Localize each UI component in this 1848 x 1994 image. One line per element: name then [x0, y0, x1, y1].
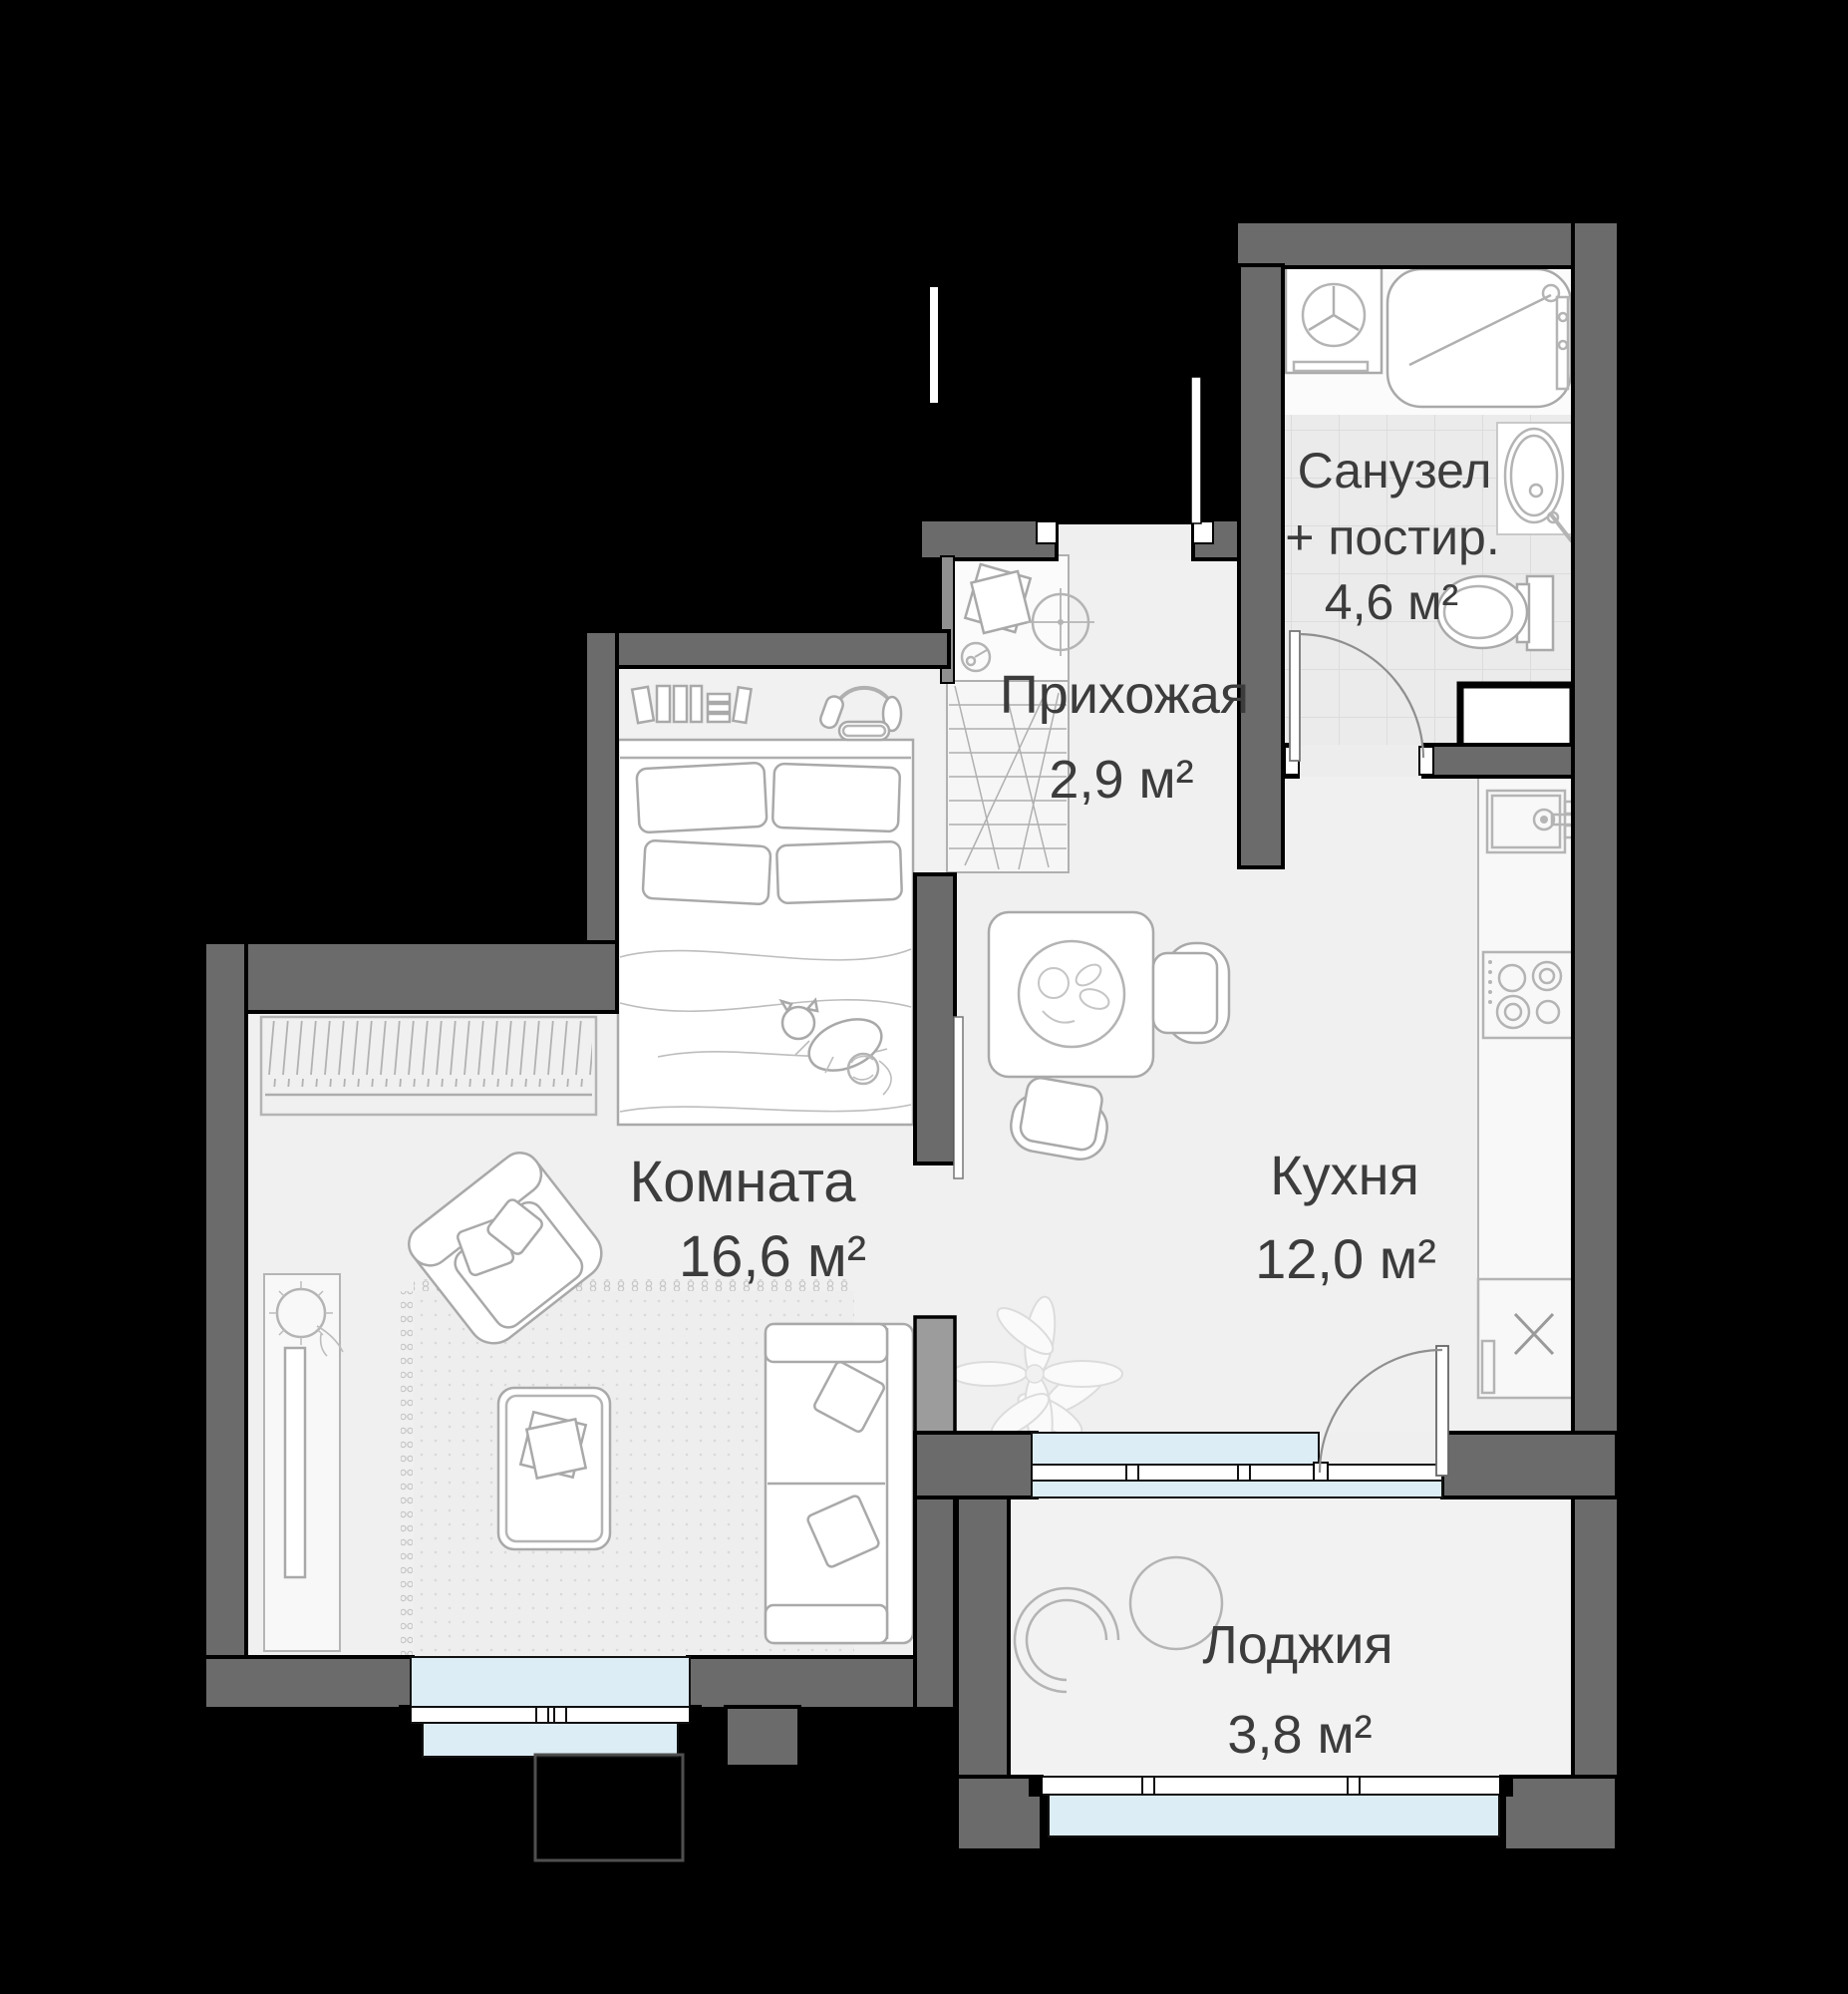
label-loggia-name: Лоджия	[1202, 1615, 1392, 1675]
dining-chair-symbol	[1153, 943, 1229, 1043]
entry-threshold	[1057, 524, 1193, 560]
exterior-wall-line	[930, 287, 938, 403]
label-bathroom-area: 4,6 м²	[1325, 574, 1458, 630]
bathroom-door-threshold	[1298, 745, 1423, 777]
label-hallway-area: 2,9 м²	[1049, 750, 1193, 810]
bed-symbol	[618, 740, 913, 1125]
wall-bathroom-left	[1239, 265, 1283, 867]
label-kitchen-name: Кухня	[1270, 1144, 1419, 1206]
tv-console-symbol	[264, 1274, 343, 1651]
wall-loggia-right-stub	[1504, 1777, 1617, 1850]
wall-room-bottom-left	[204, 1657, 413, 1709]
wall-partition-light	[915, 1317, 955, 1435]
living-room-window-symbol	[399, 1657, 702, 1757]
kitchen-counter-symbol	[1478, 773, 1575, 1398]
floor-plan-drawing: Комната 16,6 м² Кухня 12,0 м² Прихожая 2…	[0, 0, 1848, 1994]
wall-bathroom-top	[1236, 221, 1617, 267]
sliding-door-symbol	[954, 1017, 963, 1178]
wall-nook-top	[585, 631, 949, 667]
dining-table-symbol	[989, 912, 1153, 1077]
wall-partition-upper	[915, 874, 955, 1163]
sofa-symbol	[766, 1324, 913, 1643]
wall-kitchen-bottom-left	[915, 1433, 1037, 1497]
floor-plan-page: Комната 16,6 м² Кухня 12,0 м² Прихожая 2…	[0, 0, 1848, 1994]
washbasin-symbol	[1497, 423, 1573, 541]
bathtub-symbol	[1387, 269, 1571, 407]
loggia-window-symbol	[1029, 1775, 1513, 1836]
coffee-table-symbol	[498, 1388, 610, 1549]
label-kitchen-area: 12,0 м²	[1255, 1227, 1436, 1290]
wall-room-top	[204, 942, 617, 1012]
wall-kitchen-bottom-right	[1442, 1433, 1617, 1497]
wall-bath-bottom-right	[1423, 745, 1573, 777]
tv-symbol	[285, 1348, 305, 1577]
label-bathroom-name2: + постир.	[1285, 509, 1500, 565]
wall-right	[1573, 221, 1619, 1849]
label-living-area: 16,6 м²	[679, 1224, 866, 1289]
label-loggia-area: 3,8 м²	[1227, 1705, 1372, 1765]
label-living-name: Комната	[629, 1150, 856, 1214]
washing-machine-symbol	[1286, 267, 1382, 373]
wall-step	[726, 1707, 799, 1767]
label-hallway-name: Прихожая	[1000, 665, 1249, 725]
wall-room-left	[204, 942, 246, 1710]
wall-loggia-left	[957, 1497, 1009, 1779]
label-bathroom-name: Санузел	[1298, 443, 1492, 498]
